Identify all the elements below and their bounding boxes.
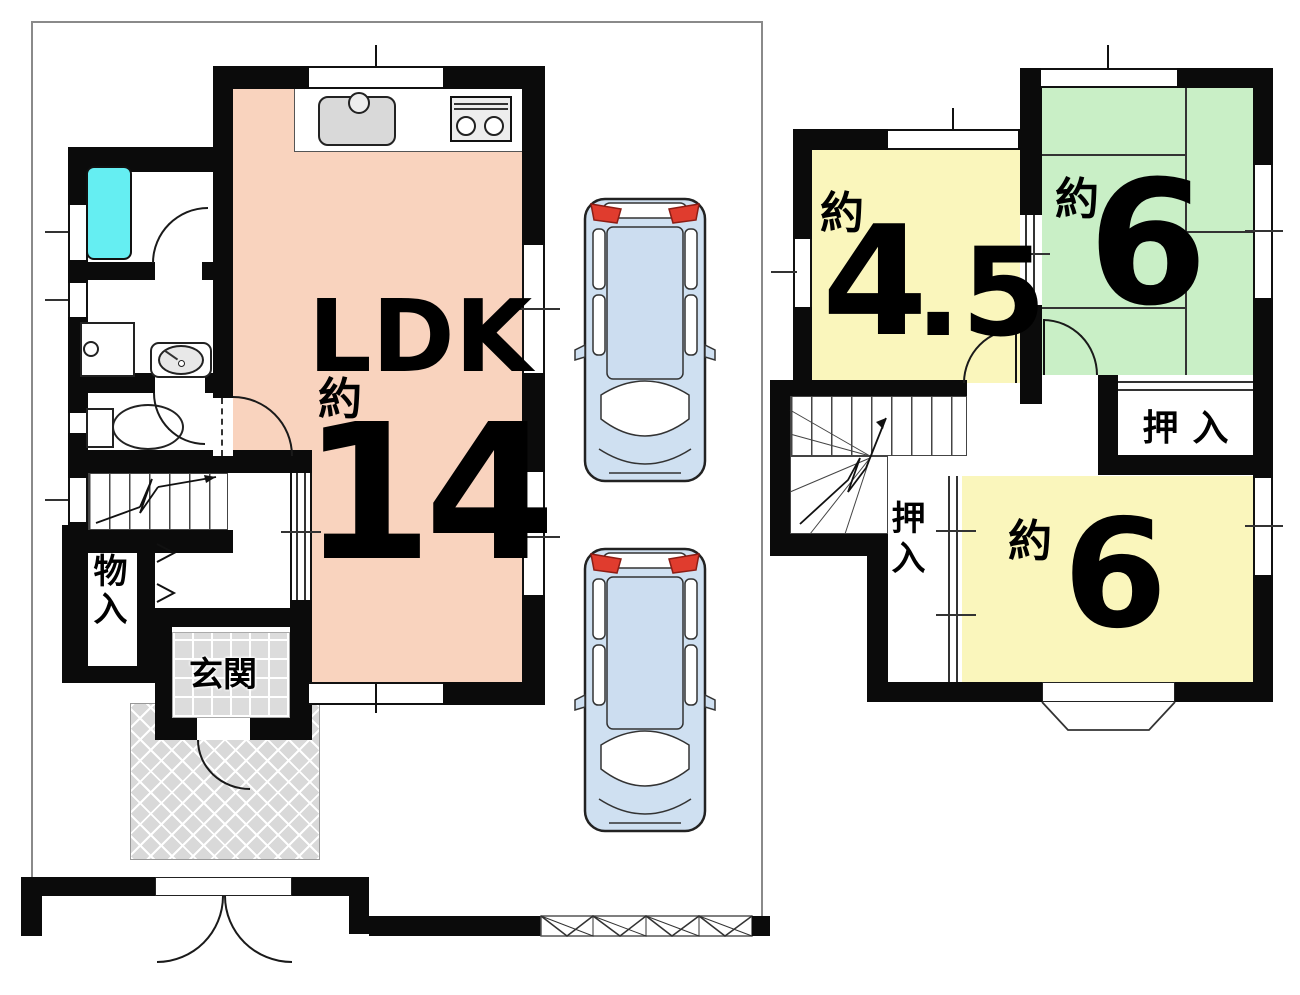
- window: [1041, 68, 1177, 88]
- room-6-green-size: 6: [1088, 158, 1208, 330]
- bathtub-icon: [86, 166, 132, 260]
- line-mark: [1107, 45, 1109, 68]
- wall-segment: [137, 525, 155, 683]
- wall-segment: [292, 877, 349, 896]
- shape: [601, 381, 689, 436]
- shape: [204, 475, 216, 483]
- genkan-label: 玄関: [189, 658, 257, 692]
- shape: [607, 577, 683, 729]
- closet-oshiire-side-label: 押入: [888, 500, 922, 580]
- wall-segment: [770, 380, 790, 556]
- shape: [593, 645, 605, 705]
- shape: [685, 645, 697, 705]
- stairs-winders: [790, 396, 967, 534]
- wall-segment: [21, 877, 42, 936]
- line-mark: [296, 473, 298, 600]
- door-leaf-dashed: [221, 398, 223, 456]
- wall-segment: [213, 172, 233, 398]
- stove-grill-line: [454, 108, 508, 110]
- closet-oshiire-top-label: 押入: [1118, 405, 1253, 453]
- wall-segment: [250, 718, 312, 740]
- car-icon: [575, 195, 715, 485]
- toilet-tank-icon: [86, 408, 114, 448]
- line-mark: [1245, 525, 1283, 527]
- shape: [157, 584, 174, 602]
- car-icon: [575, 545, 715, 835]
- room-ldk-label: LDK: [308, 287, 532, 387]
- line-mark: [375, 45, 377, 66]
- washer-drain-icon: [83, 341, 99, 357]
- line-mark: [45, 499, 68, 501]
- fence-zigzag: [541, 916, 752, 936]
- room-ldk-size: 14: [302, 400, 548, 588]
- wall-segment: [1253, 68, 1273, 700]
- shape: [845, 458, 870, 534]
- window: [68, 283, 88, 317]
- line-mark: [936, 614, 976, 616]
- gate-door-arc[interactable]: [157, 896, 224, 963]
- line-mark: [956, 476, 958, 682]
- wall-segment: [205, 373, 233, 393]
- gate-head: [155, 877, 292, 896]
- shape: [1042, 702, 1175, 730]
- window: [888, 129, 1018, 150]
- folding-door-icon: [156, 543, 178, 605]
- wall-segment: [155, 718, 197, 740]
- wall-segment: [62, 525, 80, 683]
- wall-segment: [68, 262, 155, 280]
- closet-monoiri-label: 物入: [90, 553, 124, 629]
- shape: [790, 434, 870, 456]
- shape: [705, 345, 715, 360]
- window: [309, 66, 443, 89]
- shape: [685, 295, 697, 355]
- line-mark: [45, 231, 68, 233]
- sliding-door[interactable]: [1118, 375, 1253, 398]
- floor-plan: 物入 玄関 LDK 約 14: [0, 0, 1300, 995]
- wall-segment: [369, 916, 541, 936]
- gate-door-arc[interactable]: [224, 896, 292, 963]
- burner-icon: [484, 116, 504, 136]
- line-mark: [45, 299, 68, 301]
- shape: [575, 695, 585, 710]
- window: [68, 205, 88, 260]
- shape: [685, 579, 697, 639]
- shape: [213, 398, 233, 456]
- vanity-faucet-icon: [178, 360, 185, 367]
- wall-segment: [752, 916, 770, 936]
- wall-segment: [155, 608, 312, 627]
- wall-segment: [349, 877, 369, 934]
- shape: [876, 418, 886, 429]
- line-mark: [1118, 381, 1253, 383]
- shape: [575, 345, 585, 360]
- shape: [197, 718, 250, 740]
- line-mark: [1118, 389, 1253, 391]
- bay-window: [1042, 682, 1175, 702]
- wall-segment: [1100, 455, 1273, 475]
- shape: [705, 695, 715, 710]
- wall-segment: [62, 666, 155, 683]
- window: [68, 413, 88, 433]
- room-45-size-int: 4: [822, 206, 928, 358]
- window: [68, 478, 88, 522]
- shape: [157, 544, 174, 562]
- room-6-yellow-size: 6: [1063, 500, 1167, 650]
- shape: [593, 579, 605, 639]
- line-mark: [771, 271, 797, 273]
- line-mark: [1245, 230, 1283, 232]
- faucet-icon: [348, 92, 370, 114]
- wall-segment: [770, 380, 967, 396]
- room-45-size-frac: .5: [915, 232, 1046, 354]
- room-6-yellow-approx: 約: [1008, 520, 1052, 564]
- line-mark: [936, 530, 976, 532]
- sliding-door[interactable]: [944, 476, 962, 682]
- shape: [810, 458, 870, 534]
- shape: [601, 731, 689, 786]
- stairs-direction-arrow: [88, 473, 228, 530]
- shape: [593, 229, 605, 289]
- line-mark: [948, 476, 950, 682]
- line-mark: [375, 682, 377, 713]
- wall-segment: [202, 262, 233, 280]
- shape: [685, 229, 697, 289]
- burner-icon: [456, 116, 476, 136]
- shape: [800, 458, 866, 524]
- shape: [607, 227, 683, 379]
- shape: [593, 295, 605, 355]
- line-mark: [952, 108, 954, 129]
- window: [793, 239, 812, 307]
- shape: [140, 479, 158, 513]
- shape: [96, 507, 140, 523]
- stove-grill-line: [454, 103, 508, 105]
- shape: [790, 410, 870, 456]
- bay-window-outline: [1042, 702, 1175, 732]
